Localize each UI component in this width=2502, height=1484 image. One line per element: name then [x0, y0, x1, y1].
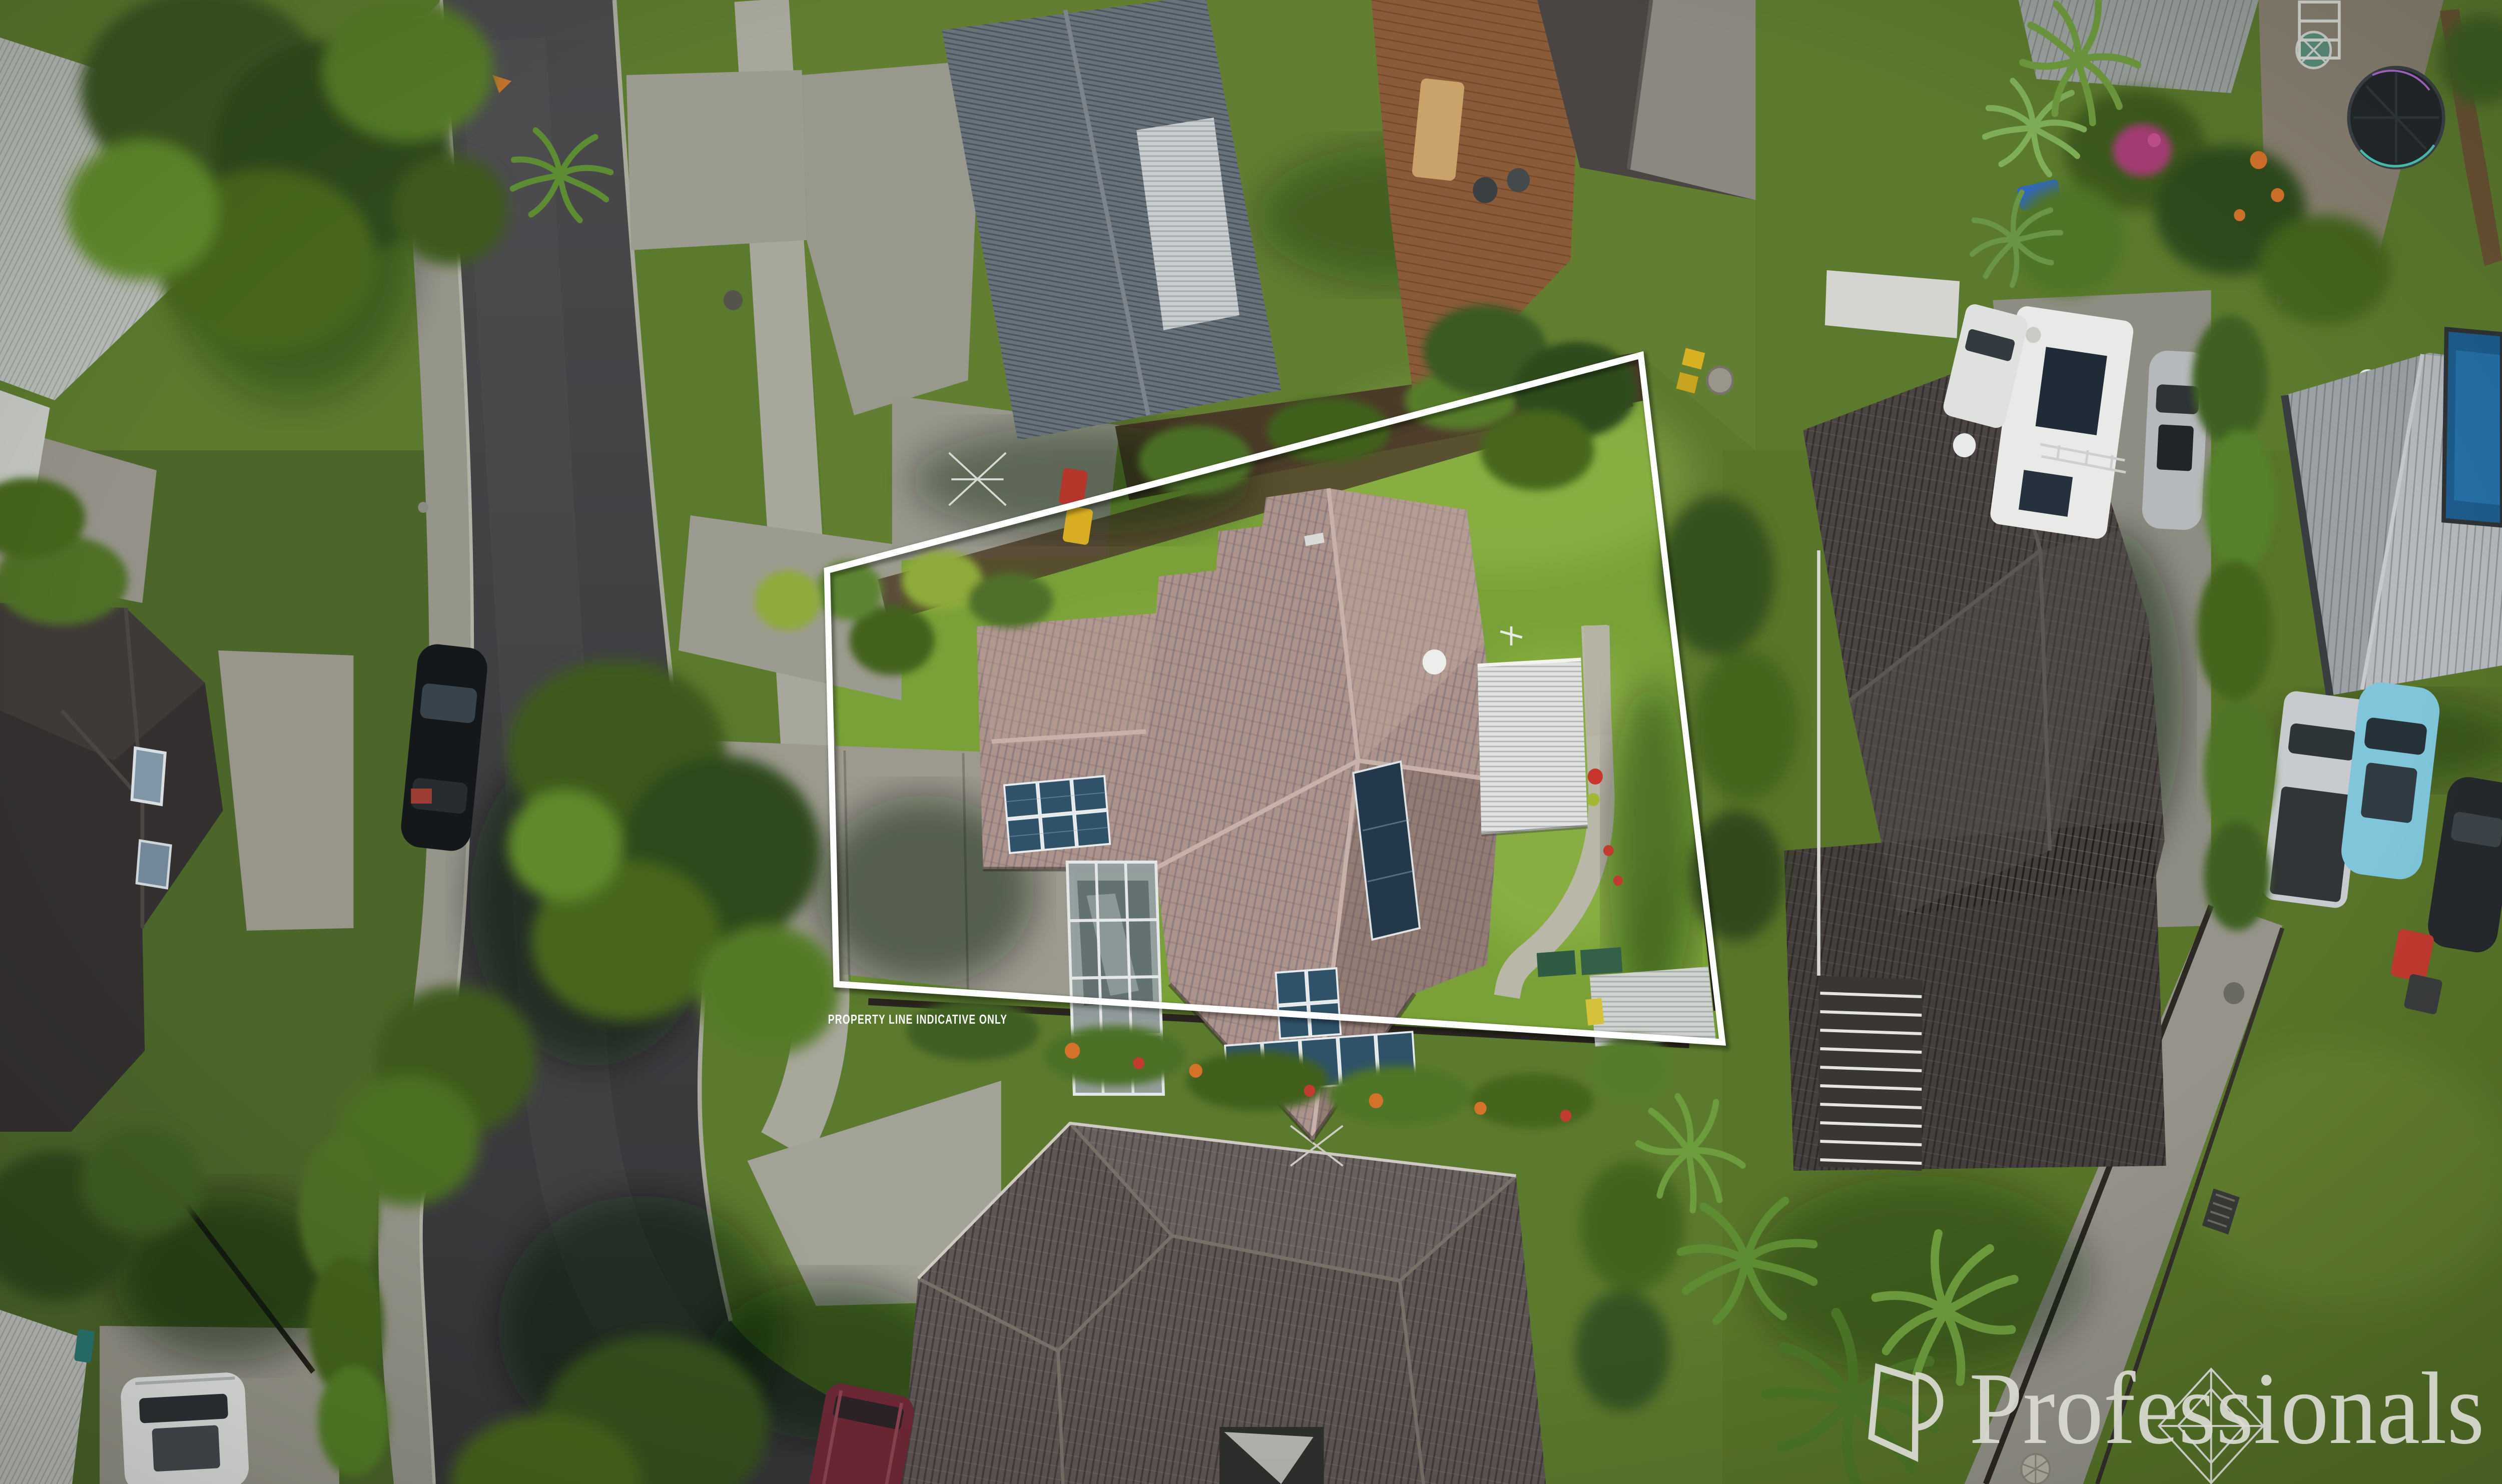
vignette [0, 0, 2502, 1484]
professionals-logo-text: Professionals [1969, 1351, 2484, 1465]
aerial-photo: PROPERTY LINE INDICATIVE ONLY Profession… [0, 0, 2502, 1484]
property-line-label: PROPERTY LINE INDICATIVE ONLY [828, 1012, 1007, 1027]
